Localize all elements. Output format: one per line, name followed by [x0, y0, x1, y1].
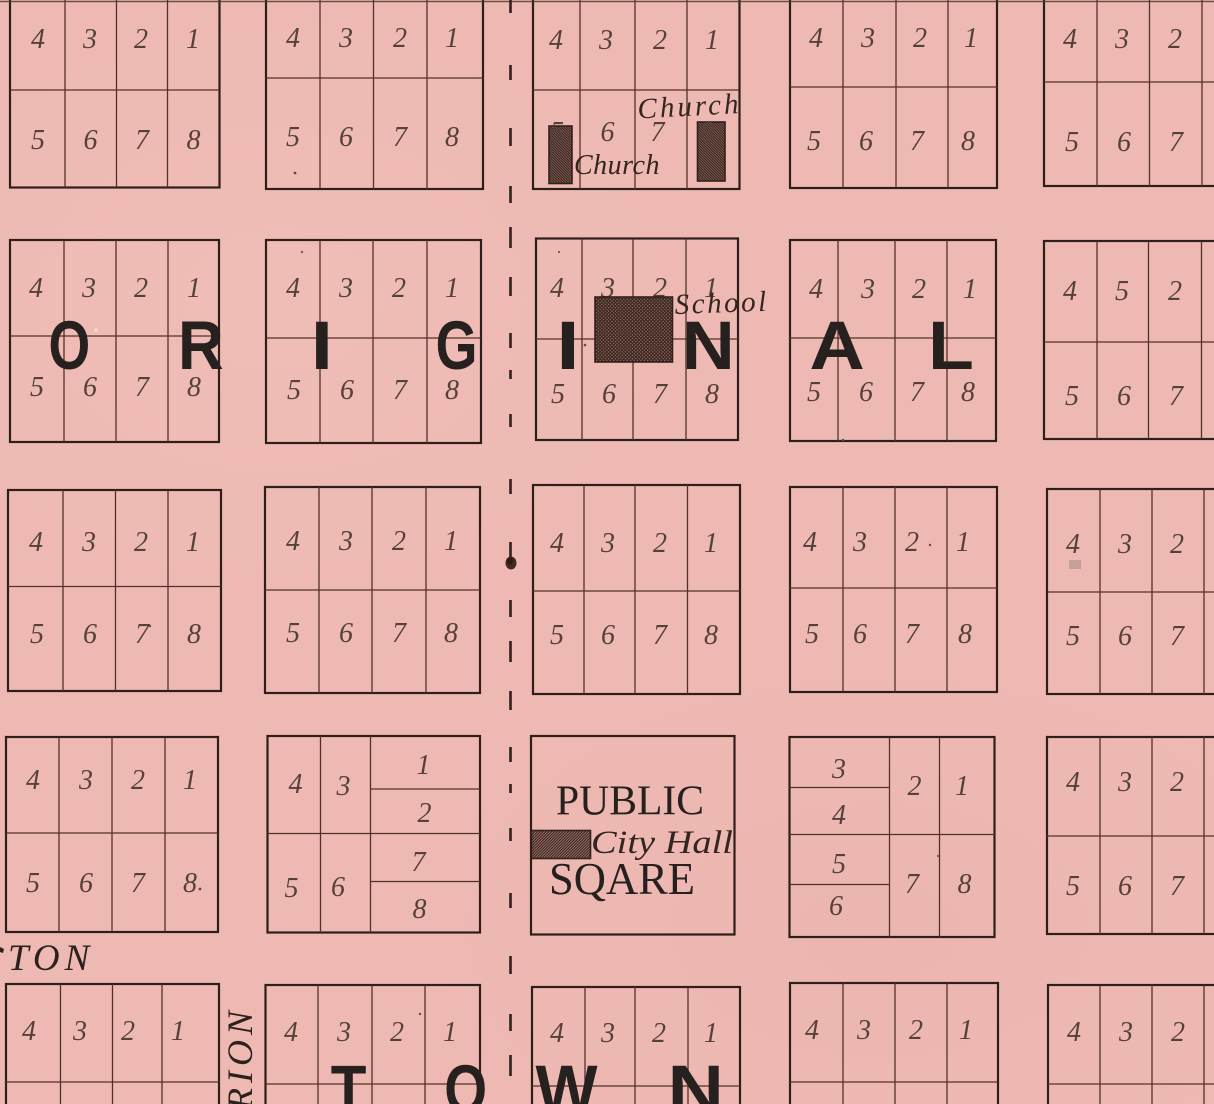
- svg-text:3: 3: [1114, 24, 1129, 55]
- svg-text:4: 4: [809, 274, 823, 305]
- svg-text:5: 5: [832, 849, 846, 880]
- svg-text:Church: Church: [637, 88, 742, 125]
- svg-text:7: 7: [653, 379, 668, 410]
- svg-text:2: 2: [131, 765, 145, 796]
- svg-text:N: N: [667, 1050, 723, 1104]
- svg-text:3: 3: [860, 274, 875, 305]
- svg-text:2: 2: [392, 273, 406, 304]
- svg-text:3: 3: [852, 527, 867, 558]
- svg-text:3: 3: [72, 1016, 87, 1047]
- svg-text:R: R: [178, 308, 224, 385]
- svg-text:8: 8: [187, 125, 201, 156]
- svg-text:8: 8: [961, 126, 975, 157]
- svg-text:5: 5: [1066, 871, 1080, 902]
- svg-text:1: 1: [443, 1017, 457, 1048]
- svg-text:2: 2: [905, 527, 919, 558]
- svg-text:3: 3: [82, 24, 97, 55]
- svg-text:8: 8: [444, 618, 458, 649]
- svg-text:4: 4: [805, 1015, 819, 1046]
- svg-text:4: 4: [1063, 276, 1077, 307]
- svg-text:7: 7: [412, 847, 427, 878]
- svg-text:RION: RION: [220, 1006, 260, 1104]
- svg-text:2: 2: [1171, 1017, 1185, 1048]
- svg-text:5: 5: [286, 122, 300, 153]
- svg-text:6: 6: [83, 619, 97, 650]
- svg-text:1: 1: [959, 1015, 973, 1046]
- svg-text:6: 6: [602, 379, 616, 410]
- svg-text:1: 1: [955, 771, 969, 802]
- svg-text:5: 5: [26, 868, 40, 899]
- svg-text:SQARE: SQARE: [549, 854, 695, 904]
- svg-text:7: 7: [1170, 621, 1185, 652]
- svg-text:3: 3: [1118, 1017, 1133, 1048]
- svg-text:TON: TON: [8, 938, 94, 979]
- svg-text:4: 4: [286, 23, 300, 54]
- svg-text:2: 2: [1168, 276, 1182, 307]
- svg-text:3: 3: [856, 1015, 871, 1046]
- svg-text:5: 5: [30, 372, 44, 403]
- svg-text:7: 7: [393, 122, 408, 153]
- svg-text:6: 6: [1117, 381, 1131, 412]
- svg-text:N: N: [682, 308, 735, 385]
- svg-text:6: 6: [601, 117, 615, 148]
- svg-text:7: 7: [1170, 871, 1185, 902]
- svg-text:1: 1: [187, 273, 201, 304]
- svg-text:4: 4: [29, 273, 43, 304]
- svg-text:7: 7: [1169, 381, 1184, 412]
- svg-text:3: 3: [81, 273, 96, 304]
- svg-text:5: 5: [286, 618, 300, 649]
- svg-text:7: 7: [905, 619, 920, 650]
- svg-text:2: 2: [134, 527, 148, 558]
- svg-text:3: 3: [1117, 529, 1132, 560]
- svg-text:4: 4: [289, 769, 303, 800]
- svg-text:4: 4: [1063, 24, 1077, 55]
- svg-text:6: 6: [1118, 871, 1132, 902]
- svg-text:4: 4: [29, 527, 43, 558]
- svg-text:3: 3: [81, 527, 96, 558]
- svg-text:2: 2: [121, 1016, 135, 1047]
- svg-text:3: 3: [860, 23, 875, 54]
- svg-text:3: 3: [598, 25, 613, 56]
- svg-text:2: 2: [1168, 24, 1182, 55]
- svg-text:T: T: [331, 1050, 367, 1104]
- svg-text:4: 4: [1066, 767, 1080, 798]
- svg-text:8: 8: [445, 122, 459, 153]
- svg-text:5: 5: [285, 873, 299, 904]
- svg-text:7: 7: [135, 125, 150, 156]
- svg-text:1: 1: [444, 526, 458, 557]
- svg-text:5: 5: [1066, 621, 1080, 652]
- svg-text:2: 2: [652, 1018, 666, 1049]
- svg-text:G: G: [436, 308, 478, 385]
- svg-text:2: 2: [1170, 767, 1184, 798]
- svg-text:5: 5: [805, 619, 819, 650]
- svg-text:6: 6: [829, 891, 843, 922]
- svg-text:1: 1: [963, 274, 977, 305]
- svg-text:6: 6: [331, 872, 345, 903]
- svg-text:5: 5: [287, 375, 301, 406]
- svg-text:3: 3: [1117, 767, 1132, 798]
- svg-text:4: 4: [1067, 1017, 1081, 1048]
- svg-text:3: 3: [338, 23, 353, 54]
- svg-text:8: 8: [958, 869, 972, 900]
- svg-text:8: 8: [187, 619, 201, 650]
- svg-text:6: 6: [601, 620, 615, 651]
- svg-text:7: 7: [910, 126, 925, 157]
- svg-text:2: 2: [134, 273, 148, 304]
- svg-text:5: 5: [31, 125, 45, 156]
- svg-text:8: 8: [183, 868, 197, 899]
- svg-text:6: 6: [339, 618, 353, 649]
- svg-text:3: 3: [831, 754, 846, 785]
- svg-text:3: 3: [336, 771, 351, 802]
- svg-text:1: 1: [964, 23, 978, 54]
- svg-text:4: 4: [550, 1018, 564, 1049]
- svg-text:1: 1: [445, 273, 459, 304]
- svg-text:4: 4: [832, 800, 846, 831]
- svg-text:2: 2: [390, 1017, 404, 1048]
- svg-text:7: 7: [392, 618, 407, 649]
- svg-text:4: 4: [284, 1017, 298, 1048]
- svg-text:6: 6: [853, 619, 867, 650]
- svg-text:4: 4: [550, 528, 564, 559]
- svg-text:2: 2: [393, 23, 407, 54]
- svg-text:3: 3: [336, 1017, 351, 1048]
- svg-text:7: 7: [910, 377, 925, 408]
- svg-text:L: L: [928, 308, 974, 385]
- svg-text:Church: Church: [574, 150, 660, 181]
- svg-text:3: 3: [338, 526, 353, 557]
- svg-text:5: 5: [807, 126, 821, 157]
- svg-text:1: 1: [417, 750, 431, 781]
- svg-text:3: 3: [78, 765, 93, 796]
- svg-text:I: I: [311, 306, 333, 384]
- svg-text:4: 4: [1066, 529, 1080, 560]
- svg-text:5: 5: [1065, 127, 1079, 158]
- svg-text:5: 5: [30, 619, 44, 650]
- svg-text:5: 5: [550, 117, 564, 148]
- svg-text:4: 4: [22, 1016, 36, 1047]
- svg-text:1: 1: [704, 528, 718, 559]
- svg-text:1: 1: [186, 24, 200, 55]
- svg-text:7: 7: [135, 372, 150, 403]
- svg-text:7: 7: [905, 869, 920, 900]
- svg-text:PUBLIC: PUBLIC: [556, 779, 704, 825]
- svg-text:2: 2: [913, 23, 927, 54]
- svg-text:5: 5: [1115, 276, 1129, 307]
- svg-text:8: 8: [413, 894, 427, 925]
- svg-text:I: I: [556, 307, 579, 384]
- svg-text:6: 6: [1117, 127, 1131, 158]
- svg-text:2: 2: [1170, 529, 1184, 560]
- svg-text:6: 6: [1118, 621, 1132, 652]
- svg-text:8: 8: [704, 620, 718, 651]
- svg-text:4: 4: [26, 765, 40, 796]
- svg-text:7: 7: [135, 619, 150, 650]
- svg-text:6: 6: [339, 122, 353, 153]
- svg-text:5: 5: [550, 620, 564, 651]
- svg-text:2: 2: [653, 25, 667, 56]
- svg-text:4: 4: [31, 24, 45, 55]
- svg-text:8: 8: [958, 619, 972, 650]
- svg-text:7: 7: [1169, 127, 1184, 158]
- svg-text:7: 7: [131, 868, 146, 899]
- svg-text:1: 1: [186, 527, 200, 558]
- svg-text:6: 6: [340, 375, 354, 406]
- svg-text:1: 1: [171, 1016, 185, 1047]
- svg-text:4: 4: [550, 273, 564, 304]
- svg-text:4: 4: [549, 25, 563, 56]
- svg-text:O: O: [49, 308, 91, 385]
- svg-text:6: 6: [79, 868, 93, 899]
- svg-text:3: 3: [338, 273, 353, 304]
- svg-text:2: 2: [912, 274, 926, 305]
- svg-text:O: O: [444, 1051, 487, 1104]
- svg-text:4: 4: [286, 273, 300, 304]
- svg-text:4: 4: [286, 526, 300, 557]
- svg-text:1: 1: [183, 765, 197, 796]
- svg-text:2: 2: [392, 526, 406, 557]
- svg-text:7: 7: [653, 620, 668, 651]
- svg-text:1: 1: [445, 23, 459, 54]
- svg-text:W: W: [535, 1052, 597, 1104]
- svg-text:3: 3: [600, 1018, 615, 1049]
- svg-text:6: 6: [859, 126, 873, 157]
- svg-text:1: 1: [705, 25, 719, 56]
- svg-text:4: 4: [803, 527, 817, 558]
- svg-text:2: 2: [418, 798, 432, 829]
- svg-text:6: 6: [84, 125, 98, 156]
- svg-text:3: 3: [600, 528, 615, 559]
- svg-text:4: 4: [809, 23, 823, 54]
- svg-text:A: A: [809, 308, 864, 385]
- svg-text:1: 1: [956, 527, 970, 558]
- svg-text:5: 5: [1065, 381, 1079, 412]
- svg-text:2: 2: [909, 1015, 923, 1046]
- svg-text:2: 2: [653, 528, 667, 559]
- svg-text:2: 2: [134, 24, 148, 55]
- svg-text:1: 1: [704, 1018, 718, 1049]
- svg-text:7: 7: [393, 375, 408, 406]
- svg-text:2: 2: [908, 771, 922, 802]
